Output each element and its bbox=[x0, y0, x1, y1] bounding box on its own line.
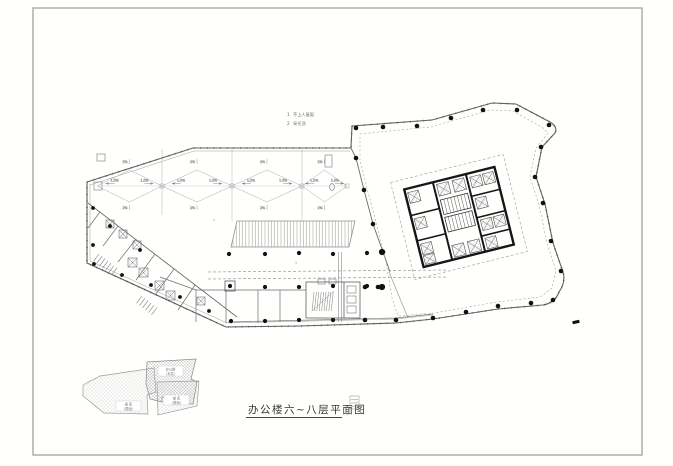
gutter-slope-label: 1.5% bbox=[177, 179, 185, 183]
keyplan-label-left: 裙 房 (屋面) bbox=[116, 401, 141, 411]
gutter-slope-label: 1.5% bbox=[331, 179, 339, 183]
roof-slope-label: 2% bbox=[260, 206, 265, 210]
tower-inner-dashed bbox=[360, 110, 556, 316]
legend-item-1-num: 1 bbox=[287, 112, 290, 117]
keyplan-label-right: 裙 房 (屋面) bbox=[164, 395, 189, 405]
gutter-slope-label: 1.5% bbox=[111, 179, 119, 183]
gutter-slope-label: 1.5% bbox=[140, 179, 148, 183]
keyplan-label-tower: 办公楼 (本层) bbox=[158, 366, 183, 376]
corridor-lines bbox=[208, 252, 448, 322]
legend-item-2-label: 采光顶 bbox=[293, 120, 306, 127]
tower-core bbox=[391, 154, 528, 279]
building-outline bbox=[87, 103, 564, 327]
legend-item-1-label: 不上人屋面 bbox=[293, 111, 314, 118]
roof-slope-label: 2% bbox=[190, 206, 195, 210]
diagonal-brace bbox=[389, 272, 408, 318]
drawing-sheet: 2%2%1.5%1.5%2%2%1.5%1.5%2%2%1.5%1.5%2%2%… bbox=[0, 0, 673, 466]
roof-slope-label: 2% bbox=[123, 160, 128, 164]
boxed-column bbox=[225, 281, 235, 291]
gutter-slope-label: 1.5% bbox=[279, 179, 287, 183]
floor-plan-svg: 2%2%1.5%1.5%2%2%1.5%1.5%2%2%1.5%1.5%2%2%… bbox=[0, 0, 673, 466]
roof-drainage-area: 2%2%1.5%1.5%2%2%1.5%1.5%2%2%1.5%1.5%2%2%… bbox=[97, 149, 349, 221]
structural-columns bbox=[91, 108, 563, 323]
svg-text:裙 房: 裙 房 bbox=[173, 396, 180, 401]
zone-mark-2: 1 bbox=[295, 261, 297, 265]
key-plan: 办公楼 (本层) 裙 房 (屋面) 裙 房 (屋面) bbox=[83, 359, 199, 415]
svg-text:(本层): (本层) bbox=[166, 371, 175, 376]
roof-slope-label: 2% bbox=[318, 160, 323, 164]
svg-text:裙 房: 裙 房 bbox=[125, 402, 132, 407]
roof-box bbox=[97, 154, 105, 161]
gutter-slope-label: 1.5% bbox=[209, 179, 217, 183]
svg-text:办公楼: 办公楼 bbox=[166, 367, 176, 372]
rooftop-unit bbox=[325, 155, 332, 167]
legend-item-2-num: 2 bbox=[287, 121, 290, 126]
roof-slope-label: 2% bbox=[260, 160, 265, 164]
svg-text:(屋面): (屋面) bbox=[124, 406, 133, 411]
gutter-slope-label: 1.5% bbox=[310, 179, 318, 183]
zone-mark-1: 1 bbox=[213, 218, 215, 222]
roof-fixtures bbox=[94, 154, 334, 190]
outer-wall bbox=[87, 103, 564, 327]
louver-strip bbox=[231, 219, 355, 249]
legend: 1 不上人屋面 2 采光顶 bbox=[287, 111, 314, 127]
roof-vent bbox=[330, 184, 335, 191]
title-block: 办公楼六~八层平面图 bbox=[246, 396, 366, 418]
svg-text:(屋面): (屋面) bbox=[172, 400, 181, 405]
roof-slope-label: 2% bbox=[318, 206, 323, 210]
roof-slope-label: 2% bbox=[123, 206, 128, 210]
stray-mark bbox=[572, 320, 579, 324]
roof-slope-label: 2% bbox=[190, 160, 195, 164]
gutter-slope-label: 1.5% bbox=[247, 179, 255, 183]
expansion-joint bbox=[339, 252, 342, 322]
curtain-wall-ticks bbox=[87, 103, 564, 327]
